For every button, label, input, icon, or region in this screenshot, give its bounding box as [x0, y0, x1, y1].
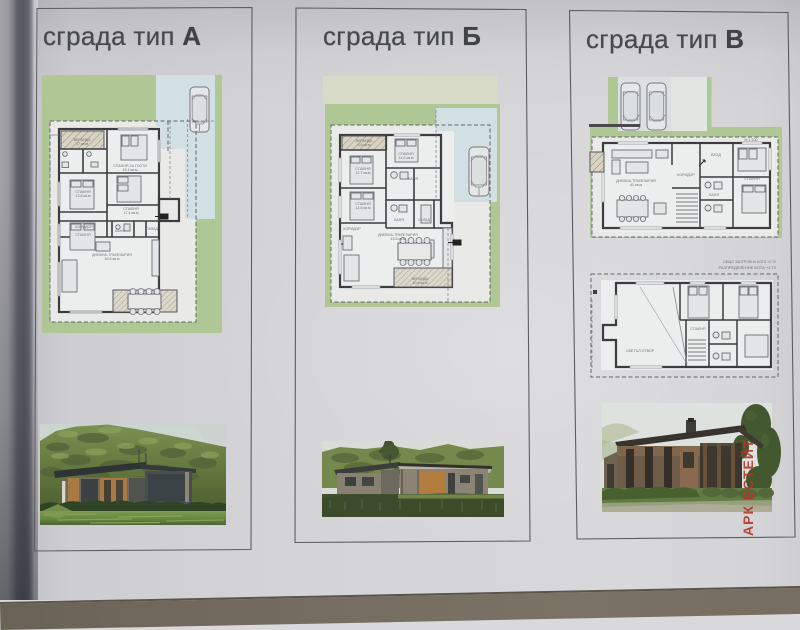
svg-text:14.6 кв.м: 14.6 кв.м [356, 206, 371, 210]
svg-text:СПАЛНЯ: СПАЛНЯ [744, 177, 760, 181]
svg-text:БАНЯ: БАНЯ [115, 229, 125, 233]
svg-text:43.8 кв.м: 43.8 кв.м [391, 237, 406, 241]
svg-text:ВХОД: ВХОД [711, 153, 721, 157]
svg-text:БАНЯ: БАНЯ [394, 218, 404, 222]
svg-text:9.6 кв.м: 9.6 кв.м [358, 143, 371, 147]
svg-text:17.4 кв.м: 17.4 кв.м [124, 211, 139, 215]
svg-text:КОРИДОР: КОРИДОР [677, 173, 695, 177]
svg-text:17 кв.м: 17 кв.м [76, 142, 88, 146]
svg-text:БАНЯ: БАНЯ [709, 193, 719, 197]
svg-text:СКЛАД: СКЛАД [418, 218, 431, 222]
svg-text:СПАЛНЯ: СПАЛНЯ [75, 233, 91, 237]
svg-text:15.4 кв.м: 15.4 кв.м [123, 168, 138, 172]
svg-text:13.6 кв.м: 13.6 кв.м [76, 194, 91, 198]
svg-text:ОБЩО ЗАСТРОЕНА КОТА +2.70: ОБЩО ЗАСТРОЕНА КОТА +2.70 [723, 260, 776, 264]
svg-text:КОРИДОР: КОРИДОР [75, 225, 93, 229]
svg-text:14.6 кв.м: 14.6 кв.м [399, 156, 414, 160]
svg-text:СПАЛНЯ: СПАЛНЯ [690, 327, 706, 331]
svg-text:10.8 кв.м: 10.8 кв.м [413, 281, 428, 285]
svg-text:12.7 кв.м: 12.7 кв.м [356, 171, 371, 175]
svg-text:СКЛАД: СКЛАД [146, 227, 159, 231]
svg-text:РАЗПРЕДЕЛЕНИЕ КОТА +2.70: РАЗПРЕДЕЛЕНИЕ КОТА +2.70 [719, 265, 777, 270]
svg-text:КОРИДОР: КОРИДОР [343, 227, 361, 231]
svg-text:41 кв.м: 41 кв.м [630, 183, 642, 187]
svg-text:БАНЯ: БАНЯ [408, 177, 418, 181]
svg-text:СВЕТЪЛ ОТВОР: СВЕТЪЛ ОТВОР [626, 349, 655, 353]
svg-text:46.6 кв.м: 46.6 кв.м [105, 257, 120, 261]
svg-text:М 1:100: М 1:100 [745, 138, 758, 142]
